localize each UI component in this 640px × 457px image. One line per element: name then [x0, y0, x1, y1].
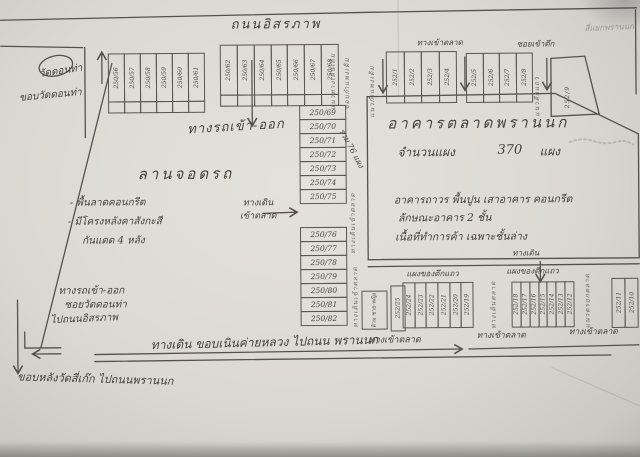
- stall-number: 250/80: [311, 286, 337, 295]
- stall-number: 250/63: [242, 59, 249, 80]
- stall-cell: 250/72: [299, 147, 346, 162]
- stall-cell: [220, 95, 238, 107]
- stall-number: 252/10: [628, 292, 635, 313]
- stall-number: 252/3: [427, 69, 434, 86]
- stall-cell: 250/60: [172, 53, 189, 102]
- stall-cell: 252/2: [403, 51, 422, 103]
- stall-cell: [108, 101, 125, 113]
- market-entry-top-label: ทางเข้าตลาด: [417, 39, 463, 48]
- stall-number: 252/5: [471, 69, 478, 86]
- stall-number: 252/13: [557, 294, 564, 315]
- parking-note-1: - พื้นลาดคอนกรีต: [70, 197, 146, 209]
- stall-cell: 252/3: [421, 51, 440, 103]
- stall-number: 250/71: [310, 136, 336, 145]
- scanned-site-plan-photo: ถนนอิสรภาพ สี่แยกพรานนก วัดดอนท่า ขอบวัด…: [0, 0, 640, 457]
- stall-cell: 252/19: [461, 282, 474, 328]
- stall-cell: [237, 94, 255, 106]
- stall-number: 250/78: [311, 258, 337, 267]
- market-count-unit: แผง: [539, 145, 560, 158]
- stall-number: 250/69: [309, 108, 335, 117]
- stall-cell: 250/66: [287, 44, 305, 95]
- stall-number: 250/82: [311, 314, 337, 323]
- parking-note-2: - มีโครงหลังคาสังกะสี: [68, 216, 162, 228]
- vertical-label-lane-2: แนวตรอกตลาด: [584, 274, 592, 328]
- stall-number: 252/19: [464, 294, 471, 315]
- stall-number: 252/6: [488, 69, 495, 86]
- stall-cell: 250/63: [237, 44, 255, 95]
- stall-cell: [172, 101, 189, 113]
- stall-cell: 250/73: [300, 161, 347, 176]
- stall-column-lower: 250/76250/77250/78250/79250/80250/81250/…: [300, 228, 348, 326]
- stall-cell: 250/70: [299, 119, 346, 134]
- stall-number: 250/72: [310, 150, 336, 159]
- stall-column-upper: 250/69250/70250/71250/72250/73250/74250/…: [299, 106, 347, 204]
- stall-number: 250/81: [311, 300, 337, 309]
- stall-number: 250/62: [225, 60, 232, 81]
- stall-number: 250/59: [161, 67, 168, 88]
- walk-label-line1: ทางเดิน: [243, 199, 274, 209]
- stall-cell: [156, 101, 173, 113]
- stall-number: 252/14: [548, 294, 555, 315]
- toilet-box: ส้วม ชาย-หญิง: [361, 291, 387, 330]
- bottom-walkway-line-1b: [469, 345, 639, 349]
- stall-number: 252/1: [392, 69, 399, 86]
- stall-cell: [254, 94, 272, 106]
- stall-cell: [271, 94, 289, 106]
- vertical-label-walk-in-2: ทางเดินเข้าตลาด: [352, 236, 360, 328]
- stall-cell: 250/77: [300, 241, 347, 256]
- bottom-walkway-line-1: [95, 349, 461, 355]
- stall-number: 250/79: [311, 272, 337, 281]
- stall-cell: 250/76: [300, 227, 347, 242]
- stall-number: 252/16: [531, 294, 538, 315]
- stall-cell: 250/69: [299, 105, 346, 120]
- stall-number: 252/18: [513, 294, 520, 315]
- stall-cell: 250/68: [321, 44, 339, 95]
- stall-cell: 250/64: [253, 44, 271, 95]
- stall-cell: 250/57: [124, 53, 141, 102]
- road-label-issaraphap: ถนนอิสรภาพ: [231, 18, 322, 33]
- right-border-line: [635, 10, 636, 94]
- stall-number: 252/24: [405, 295, 412, 316]
- stall-number: 252/7: [504, 69, 511, 86]
- stall-number: 252/11: [615, 292, 622, 313]
- stall-cell: 250/67: [304, 44, 322, 95]
- stall-block-top-left: 250/56250/57250/58250/59250/60250/61: [109, 53, 205, 114]
- stall-cell: 250/65: [270, 44, 288, 95]
- stall-cell: 250/71: [299, 133, 346, 148]
- stall-number: 250/58: [145, 67, 152, 88]
- stall-number: 250/66: [293, 59, 300, 80]
- stall-cell: 252/7: [499, 53, 517, 103]
- market-desc-2: ลักษณะอาคาร 2 ชั้น: [398, 213, 492, 225]
- top-road-line-2: [1, 46, 83, 49]
- stall-block-bottom-far: 252/11252/10: [612, 278, 638, 328]
- stall-number: 252/22: [429, 295, 436, 316]
- stall-block-top-right-1: 252/1252/2252/3252/4: [387, 51, 457, 103]
- stall-number: 252/20: [452, 294, 459, 315]
- stall-cell: 250/59: [156, 53, 173, 102]
- stall-cell: 250/79: [300, 269, 347, 284]
- stall-cell: 250/82: [301, 311, 348, 326]
- vertical-label-lane-1: ทางเดินตลาด: [490, 281, 497, 329]
- stall-number: 250/76: [310, 230, 336, 239]
- stall-cell: 252/4: [438, 51, 457, 103]
- bottom-walkway-line-2: [95, 355, 611, 362]
- exit-label-1: ทางรถเข้า-ออก: [58, 285, 124, 296]
- stall-cell: 250/56: [108, 53, 125, 102]
- stall-cell: [124, 101, 141, 113]
- entry-label-3: ทางเข้าตลาด: [569, 328, 618, 338]
- stall-cell: 250/58: [140, 53, 157, 102]
- stall-block-top-center: 250/62250/63250/64250/65250/66250/67250/…: [221, 44, 339, 107]
- left-soi-line: [85, 48, 86, 138]
- market-building-bottom-line: [368, 264, 639, 267]
- soi-tuek-label: ซอยเข้าตึก: [517, 40, 555, 49]
- stall-number: 250/73: [310, 164, 336, 173]
- stall-cell: 250/61: [188, 53, 205, 102]
- row-label-left: แผงของตึกแถว: [406, 270, 459, 279]
- stall-block-bottom-right: 252/18252/17252/16252/15252/14252/13252/…: [512, 281, 574, 327]
- stall-number: 250/77: [310, 244, 336, 253]
- stall-number: 250/57: [129, 67, 136, 88]
- stall-cell: 250/78: [300, 255, 347, 270]
- vertical-label-rowhouse: แนวตึกแถว: [534, 60, 542, 116]
- stall-number-trapezoid: 252/9: [565, 68, 572, 108]
- stall-number: 250/70: [310, 122, 336, 131]
- stall-number: 252/2: [409, 69, 416, 86]
- stall-number: 252/15: [539, 294, 546, 315]
- stall-cell: 250/80: [300, 283, 347, 298]
- stall-cell: 250/81: [300, 297, 347, 312]
- arrow-down-far-left: [17, 300, 18, 372]
- stall-block-bottom-left: 252/24252/23252/22252/21252/20252/19: [403, 282, 473, 328]
- stall-cell: 252/12: [565, 281, 575, 327]
- stall-number: 250/74: [310, 178, 336, 187]
- toilet-label: ส้วม ชาย-หญิง: [370, 293, 378, 328]
- stall-number: 250/60: [177, 67, 184, 88]
- walk-label-line2: เข้าตลาด: [240, 212, 277, 222]
- market-desc-1: อาคารถาวร พื้นปูน เสาอาคาร คอนกรีต: [394, 194, 573, 207]
- stall-cell: 250/75: [300, 189, 347, 204]
- market-count-label: จำนวนแผง: [397, 146, 455, 160]
- hand-drawn-plan: ถนนอิสรภาพ สี่แยกพรานนก วัดดอนท่า ขอบวัด…: [0, 0, 640, 457]
- stall-number: 252/4: [444, 68, 451, 85]
- stall-number: 250/75: [310, 192, 336, 201]
- vertical-label-old-wall: ขอบกำแพงเดิม: [344, 30, 352, 110]
- stall-block-top-right-2: 252/5252/6252/7252/8: [467, 53, 533, 103]
- stall-cell: 252/8: [515, 53, 533, 103]
- parking-note-3: กันแดด 4 หลัง: [82, 235, 145, 246]
- stall-number: 252/25: [394, 298, 401, 319]
- stall-cell: 250/62: [220, 45, 238, 96]
- stall-number: 250/61: [193, 67, 200, 88]
- market-desc-3: เนื้อที่ทำการค้า เฉพาะชั้นล่าง: [395, 232, 527, 244]
- stall-cell: 252/6: [482, 53, 500, 103]
- exit-label-2: ซอยวัดดอนท่า: [64, 299, 126, 310]
- parking-title: ลานจอดรถ: [138, 166, 235, 183]
- vertical-label-wall-left: แนวกำแพงเดิม: [369, 56, 377, 118]
- stall-number: 252/17: [522, 294, 529, 315]
- stall-number: 250/68: [326, 59, 333, 80]
- stall-cell: 252/1: [386, 51, 405, 103]
- stall-number: 250/67: [310, 59, 317, 80]
- stall-number: 252/12: [566, 294, 573, 315]
- stall-cell: 252/5: [466, 53, 484, 103]
- stall-number: 252/21: [440, 295, 447, 316]
- stall-number: 250/64: [259, 59, 266, 80]
- market-count-value: 370: [497, 144, 522, 158]
- entry-label-2: ทางเข้าตลาด: [477, 332, 526, 342]
- stall-cell: 250/74: [300, 175, 347, 190]
- market-title: อาคารตลาดพรานนก: [387, 114, 569, 132]
- stall-cell: [188, 101, 205, 113]
- stall-number: 252/8: [521, 69, 528, 86]
- stall-number: 252/23: [417, 295, 424, 316]
- stall-cell: [140, 101, 157, 113]
- stall-number: 250/56: [113, 67, 120, 88]
- row-label-right: แผงของตึกแถว: [506, 267, 559, 276]
- stall-cell: 252/10: [624, 278, 638, 328]
- walk-down-label: ทางเดิน: [512, 249, 539, 258]
- stall-number: 250/65: [276, 59, 283, 80]
